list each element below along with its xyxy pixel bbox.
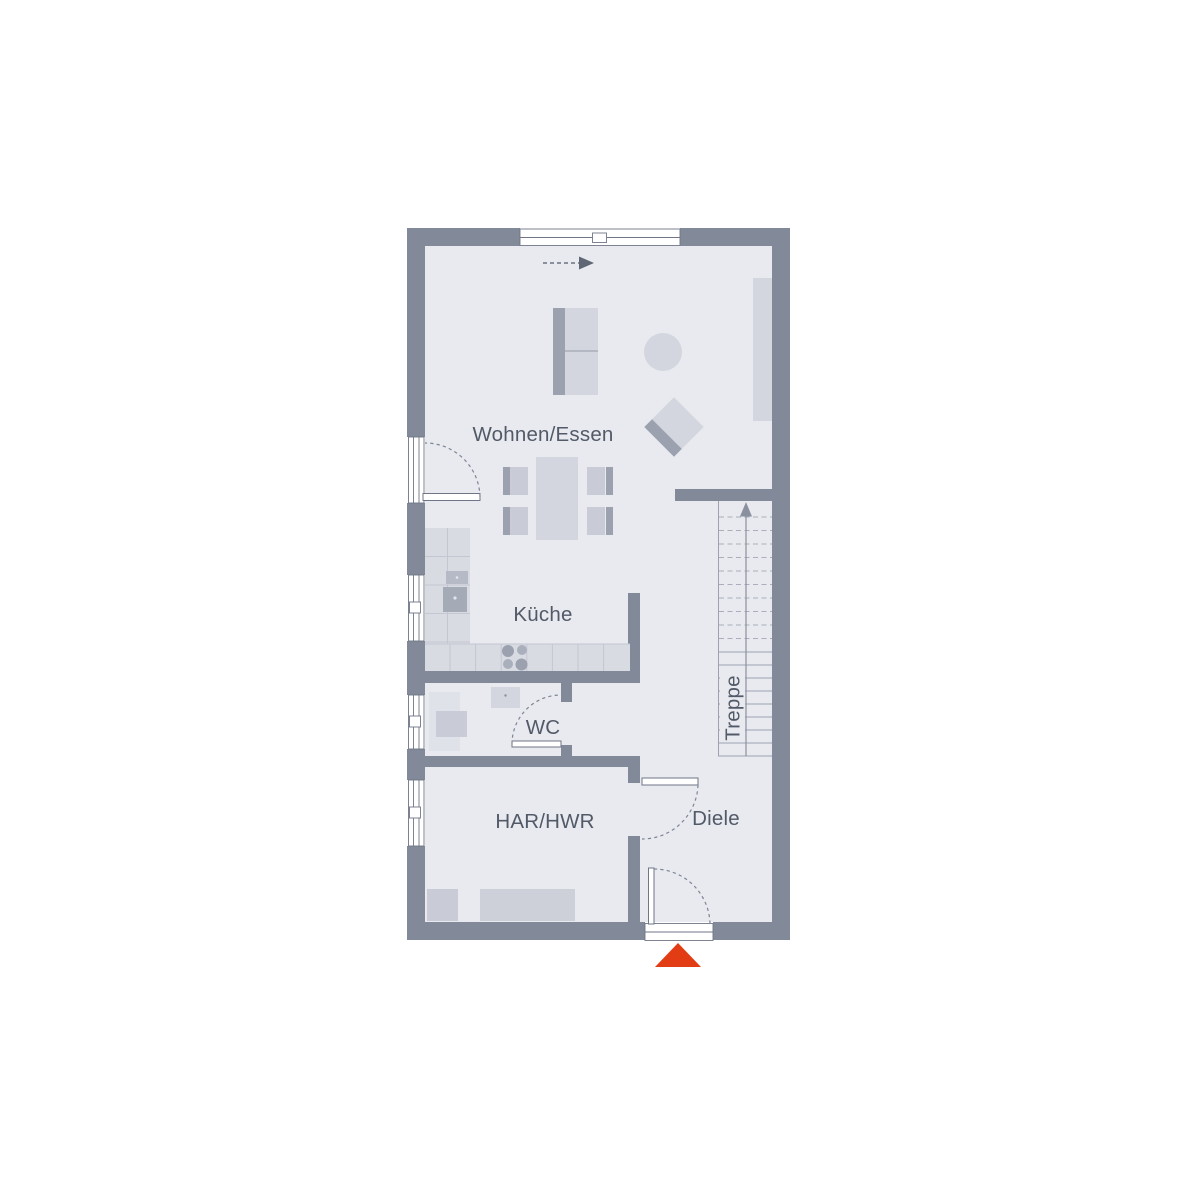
- storage-unit: [480, 889, 575, 921]
- wall-left-seg2: [407, 503, 425, 575]
- wall-left-seg4: [407, 749, 425, 780]
- dining-table: [536, 457, 578, 540]
- oven: [443, 587, 467, 612]
- wall-left-seg1: [407, 228, 425, 437]
- sink: [491, 687, 520, 708]
- toilet: [436, 711, 467, 737]
- window-handle-icon: [593, 233, 607, 243]
- room-label-kueche: Küche: [513, 603, 572, 626]
- chair: [587, 467, 613, 495]
- window-handle-icon: [410, 602, 421, 613]
- side-table-round: [644, 333, 682, 371]
- window-kitchen: [409, 575, 425, 641]
- floor-plan-canvas: Treppe Wohnen/Essen Küche WC HAR/HWR Die…: [0, 0, 1200, 1200]
- har-hwr-fixtures: [427, 889, 575, 921]
- window-wc: [409, 695, 425, 749]
- patio-door-window: [409, 437, 425, 503]
- wall-stair-stub: [675, 489, 772, 501]
- sliding-window-top: [520, 229, 680, 246]
- room-label-wc: WC: [526, 716, 561, 739]
- sofa: [553, 308, 598, 395]
- wall-wc-corner: [561, 745, 572, 756]
- chair: [503, 507, 528, 535]
- room-label-diele: Diele: [692, 807, 740, 830]
- room-label-har-hwr: HAR/HWR: [495, 810, 594, 833]
- window-handle-icon: [410, 807, 421, 818]
- wall-right: [772, 228, 790, 940]
- window-handle-icon: [410, 716, 421, 727]
- wall-left-seg3: [407, 641, 425, 695]
- wall-wc-har: [425, 756, 640, 767]
- room-label-wohnen-essen: Wohnen/Essen: [472, 423, 613, 446]
- wall-har-diele: [628, 836, 640, 922]
- wall-bottom-left: [407, 922, 645, 940]
- kitchen-counter: [425, 644, 630, 671]
- window-har: [409, 780, 425, 846]
- wall-har-stub: [628, 767, 640, 783]
- floor-plan-drawing: Treppe Wohnen/Essen Küche WC HAR/HWR Die…: [0, 0, 1200, 1200]
- chair: [503, 467, 528, 495]
- wall-bottom-right: [713, 922, 790, 940]
- wall-wc-stub: [561, 683, 572, 702]
- wall-left-seg5: [407, 846, 425, 940]
- sideboard: [753, 278, 772, 421]
- chair: [587, 507, 613, 535]
- room-label-treppe: Treppe: [721, 675, 744, 740]
- appliance-box: [427, 889, 458, 921]
- wall-kitchen-south: [425, 671, 640, 683]
- built-in-appliance: [446, 571, 468, 584]
- entrance-marker-icon: [655, 943, 701, 967]
